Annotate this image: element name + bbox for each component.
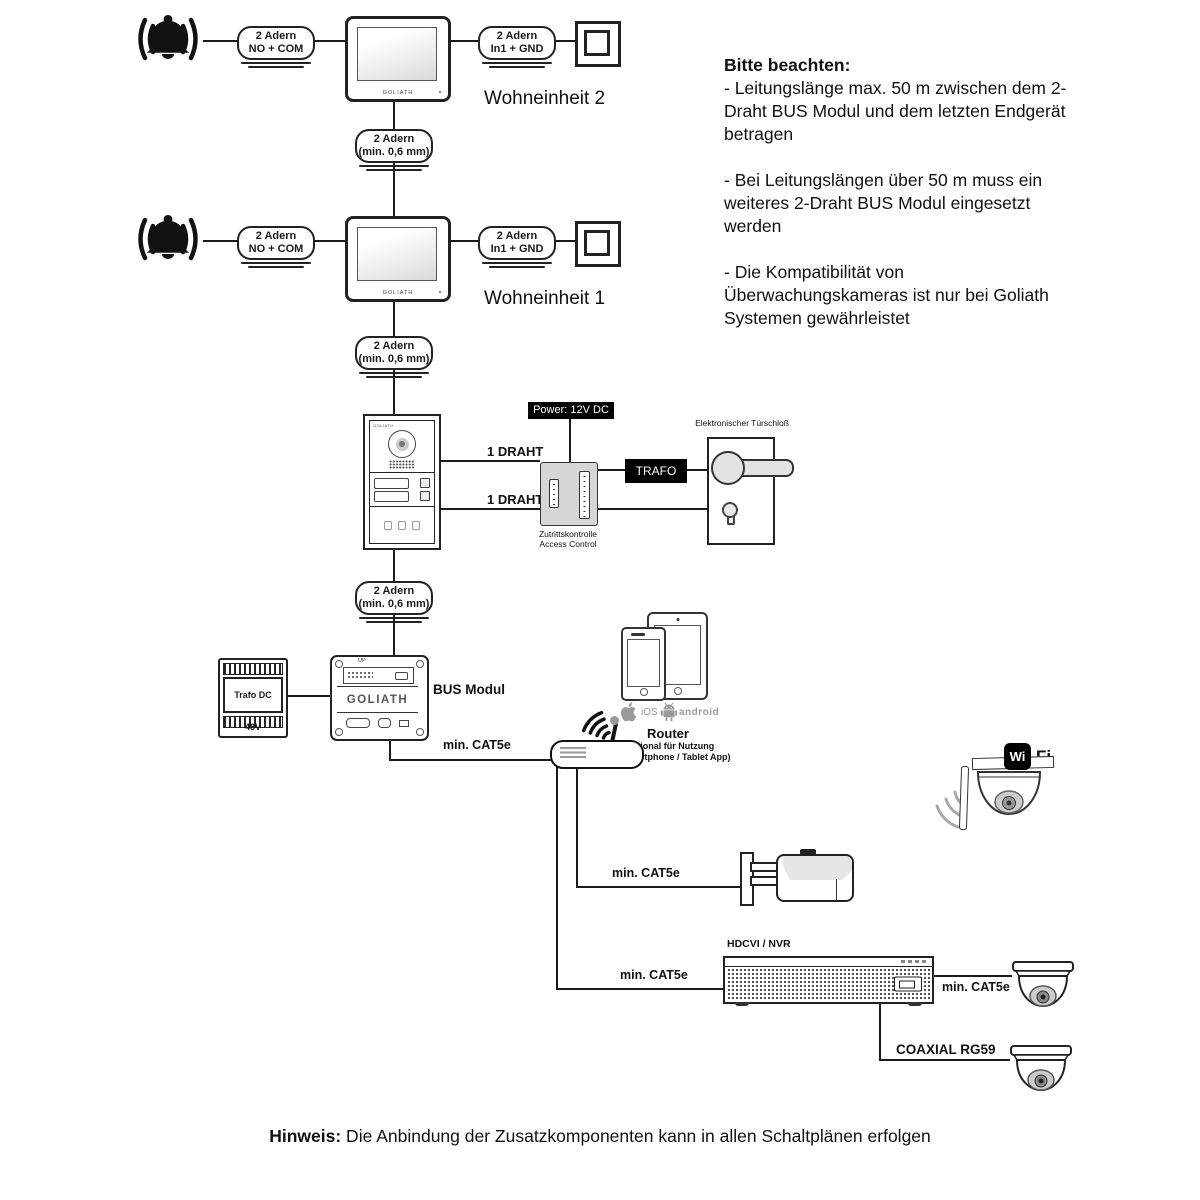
dome-camera-icon [1008, 1043, 1074, 1095]
cable-label-in1-gnd: 2 AdernIn1 + GND [478, 226, 556, 268]
touch-key-icon [398, 521, 406, 530]
connection-line [315, 40, 345, 42]
unit-2-label: Wohneinheit 2 [484, 88, 605, 110]
door-button-icon [575, 221, 621, 267]
cat5-label: min. CAT5e [620, 968, 688, 982]
brand-label: GOLIATH [347, 694, 408, 706]
cat5-label: min. CAT5e [612, 866, 680, 880]
door-button-icon [575, 21, 621, 67]
android-logo-icon [660, 702, 678, 722]
doorbell-icon [131, 10, 205, 68]
note-item: - Die Kompatibilität von Überwachungskam… [724, 261, 1080, 330]
door-station: GOLIATH [363, 414, 441, 550]
screw-icon [416, 728, 424, 736]
touch-key-icon [412, 521, 420, 530]
wire-label: 1 DRAHT [487, 444, 543, 459]
brand-label: GOLIATH [373, 423, 394, 428]
keyhole-icon [722, 502, 738, 518]
connection-line [576, 765, 578, 888]
connection-line [576, 886, 743, 888]
connection-line [930, 975, 1012, 977]
connection-line [596, 508, 707, 510]
nameplate [374, 491, 409, 502]
cat5-label: min. CAT5e [942, 980, 1010, 994]
connection-line [879, 1000, 881, 1061]
dome-camera-icon [1010, 960, 1076, 1010]
brand-label: GOLIATH [348, 290, 448, 296]
usb-port-icon [894, 976, 922, 991]
door-lock-title: Elektronischer Türschloß [684, 418, 800, 428]
trafo-box: TRAFO [625, 459, 687, 483]
touch-key-icon [384, 521, 392, 530]
cable-label-riser: 2 Adern(min. 0,6 mm) [355, 581, 433, 623]
led-icon [922, 960, 926, 963]
nvr-front-strip [725, 958, 932, 967]
bullet-camera-icon [776, 854, 854, 902]
call-button-icon [420, 491, 430, 501]
cable-label-no-com: 2 AdernNO + COM [237, 226, 315, 268]
terminal-strip-icon [579, 471, 590, 519]
terminal-strip-icon [549, 479, 559, 508]
bus-module-label: BUS Modul [433, 682, 505, 697]
monitor-screen [357, 27, 437, 81]
led-icon [915, 960, 919, 963]
indoor-monitor: GOLIATH [345, 16, 451, 102]
doorbell-icon [131, 210, 205, 268]
wire-label: 1 DRAHT [487, 492, 543, 507]
led-icon [901, 960, 905, 963]
connection-line [315, 240, 345, 242]
connection-line [687, 469, 707, 471]
notes-block: Bitte beachten: - Leitungslänge max. 50 … [724, 54, 1080, 353]
connection-line [393, 296, 395, 338]
connector-row-icon [343, 715, 412, 731]
connection-line [284, 695, 330, 697]
connection-line [437, 508, 540, 510]
smartphone-icon [621, 627, 666, 701]
connection-line [437, 460, 540, 462]
cable-label-riser: 2 Adern(min. 0,6 mm) [355, 129, 433, 171]
nvr-label: HDCVI / NVR [727, 938, 791, 950]
connection-line [569, 419, 571, 462]
wifi-camera-icon [974, 762, 1044, 822]
cat5-label: min. CAT5e [443, 738, 511, 752]
wifi-logo-wi: Wi [1004, 743, 1031, 770]
terminal-row-icon [223, 663, 283, 675]
nvr-recorder [723, 956, 934, 1004]
access-control-module [540, 462, 598, 526]
up-label: UP [358, 658, 366, 664]
screw-icon [335, 728, 343, 736]
router-icon [550, 740, 644, 769]
connection-line [556, 988, 724, 990]
connection-line [556, 40, 576, 42]
connection-line [879, 1059, 1010, 1061]
screw-icon [416, 660, 424, 668]
screw-icon [335, 660, 343, 668]
connection-line [393, 546, 395, 582]
cable-label-no-com: 2 AdernNO + COM [237, 26, 315, 68]
bus-module: UP GOLIATH [330, 655, 429, 741]
nvr-mesh-panel [727, 968, 930, 999]
speaker-grille-icon [389, 460, 415, 469]
indoor-monitor: GOLIATH [345, 216, 451, 302]
camera-lens-icon [388, 430, 416, 458]
led-icon [908, 960, 912, 963]
power-label: Power: 12V DC [528, 402, 614, 419]
din-trafo-48v: Trafo DC 48V [218, 658, 288, 738]
trafo-48v-label: Trafo DC 48V [223, 677, 283, 713]
apple-logo-icon [620, 702, 637, 722]
monitor-screen [357, 227, 437, 281]
connection-line [203, 40, 238, 42]
note-item: - Leitungslänge max. 50 m zwischen dem 2… [724, 77, 1080, 146]
nameplate [374, 478, 409, 489]
unit-1-label: Wohneinheit 1 [484, 288, 605, 310]
ios-label: iOS [641, 707, 658, 718]
terminal-block-icon [343, 667, 414, 684]
note-item: - Bei Leitungslängen über 50 m muss ein … [724, 169, 1080, 238]
connection-line [389, 759, 553, 761]
cable-label-riser: 2 Adern(min. 0,6 mm) [355, 336, 433, 378]
cable-label-in1-gnd: 2 AdernIn1 + GND [478, 26, 556, 68]
call-button-icon [420, 478, 430, 488]
notes-title: Bitte beachten: [724, 54, 1080, 77]
connection-line [556, 240, 576, 242]
access-control-label: Zutrittskontrolle Access Control [511, 529, 625, 549]
footer-note: Hinweis: Die Anbindung der Zusatzkompone… [0, 1126, 1200, 1147]
coax-label: COAXIAL RG59 [896, 1042, 996, 1057]
android-label: android [679, 707, 719, 718]
connection-line [203, 240, 238, 242]
connection-line [596, 469, 625, 471]
wiring-diagram: 2 AdernNO + COM GOLIATH 2 AdernIn1 + GND… [0, 0, 1200, 1200]
brand-label: GOLIATH [348, 90, 448, 96]
connection-line [556, 765, 558, 990]
